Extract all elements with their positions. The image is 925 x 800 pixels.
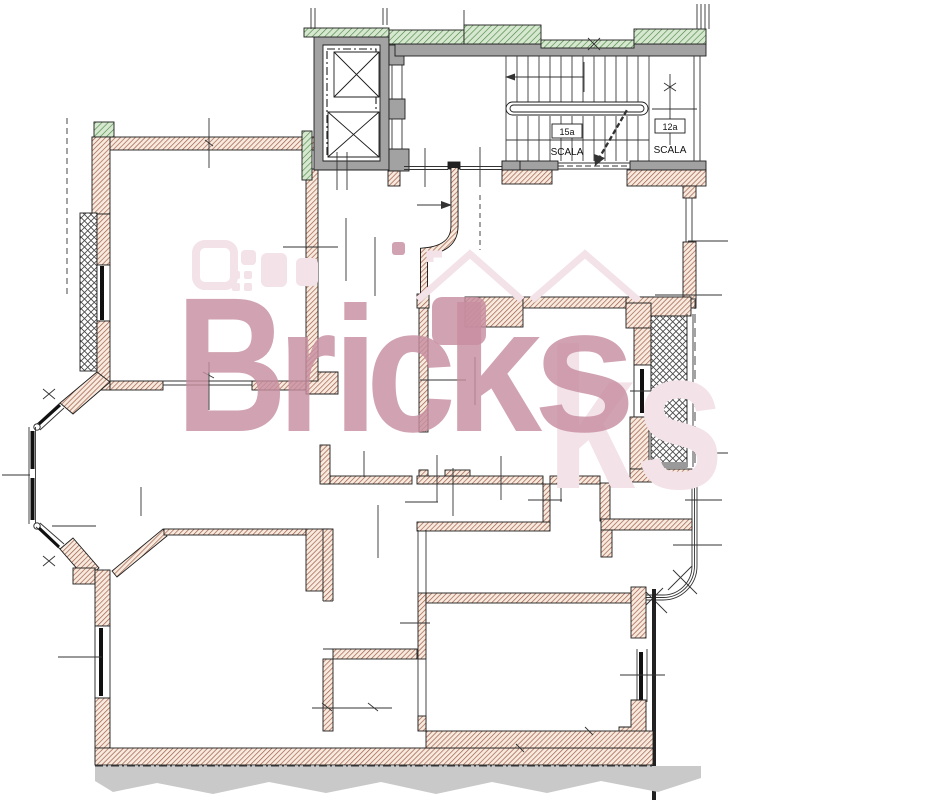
svg-text:SCALA: SCALA: [654, 145, 687, 156]
svg-text:s: s: [533, 270, 636, 469]
svg-text:12a: 12a: [662, 122, 677, 132]
svg-text:SCALA: SCALA: [551, 147, 584, 158]
svg-text:B: B: [176, 257, 287, 472]
svg-text:k: k: [445, 270, 543, 469]
svg-text:15a: 15a: [559, 127, 574, 137]
svg-text:r: r: [278, 270, 337, 469]
svg-text:c: c: [366, 270, 456, 469]
